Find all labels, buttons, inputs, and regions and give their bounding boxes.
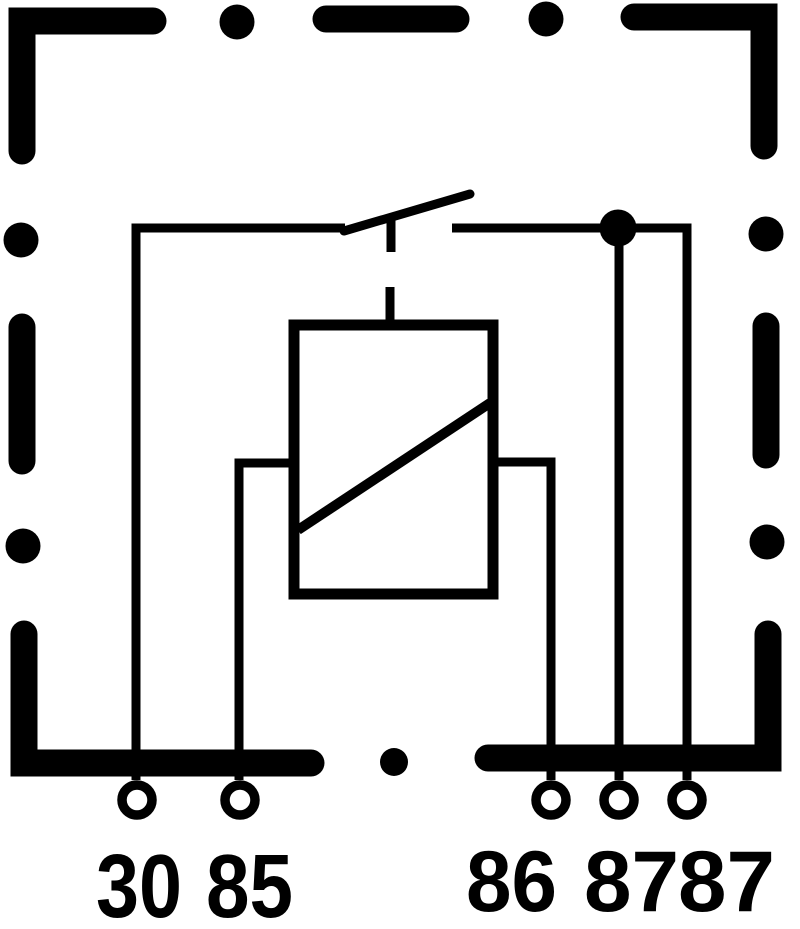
- svg-text:87: 87: [678, 834, 775, 929]
- svg-text:86: 86: [466, 834, 557, 929]
- svg-text:87: 87: [584, 834, 679, 929]
- svg-text:85: 85: [206, 837, 293, 929]
- svg-text:30: 30: [96, 837, 182, 929]
